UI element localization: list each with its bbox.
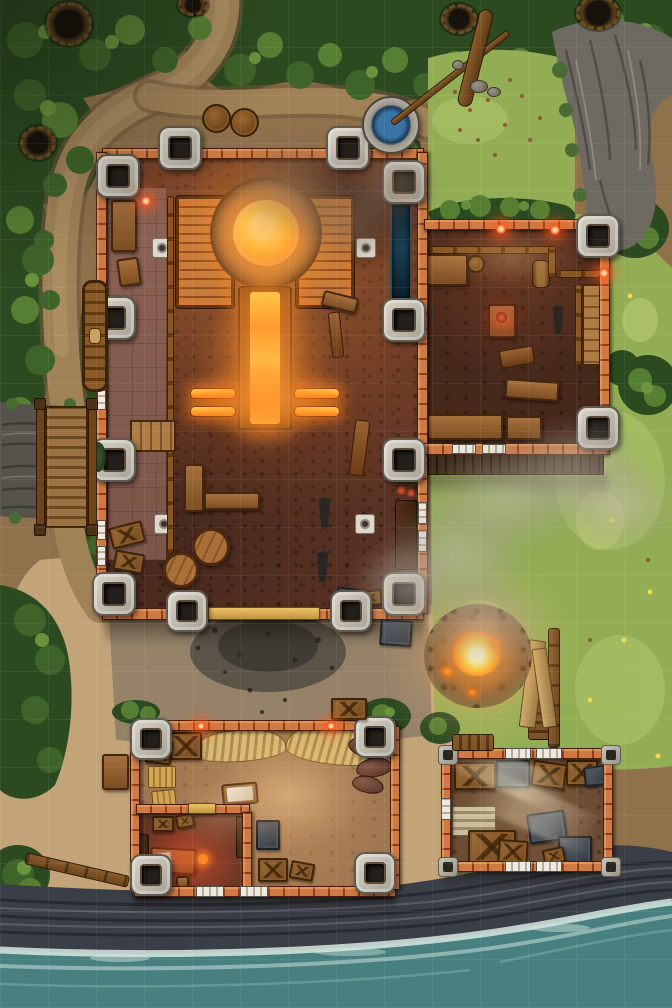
mold-glow bbox=[186, 356, 346, 442]
stone-tower bbox=[166, 590, 208, 632]
walkway-railing bbox=[167, 196, 174, 554]
hot-metal bbox=[496, 312, 507, 323]
office-forge-fire bbox=[198, 854, 208, 864]
worktable bbox=[427, 414, 503, 440]
tree-stump bbox=[46, 2, 92, 46]
bridge-post bbox=[86, 398, 98, 410]
column-base bbox=[355, 514, 375, 534]
barracks-light-pool bbox=[170, 780, 270, 850]
props-layer bbox=[0, 0, 672, 1008]
campfire-smoke bbox=[352, 540, 462, 626]
storehouse-east-wall bbox=[603, 754, 613, 864]
office-door bbox=[188, 803, 216, 814]
bridge-post bbox=[34, 524, 46, 536]
window-slit bbox=[196, 886, 224, 897]
wall-lamp bbox=[327, 722, 335, 730]
stone-tower bbox=[130, 854, 172, 896]
window-slit bbox=[240, 886, 268, 897]
office-wall bbox=[242, 812, 252, 888]
stone-tower bbox=[130, 718, 172, 760]
wall-lamp bbox=[141, 196, 151, 206]
stone-tower bbox=[382, 298, 426, 342]
side-table bbox=[116, 257, 142, 288]
wall-lamp bbox=[599, 268, 609, 278]
stone-post bbox=[601, 745, 621, 765]
well-sweep-pole bbox=[390, 30, 511, 127]
workbench bbox=[204, 492, 260, 510]
bridge-post bbox=[86, 524, 98, 536]
crate bbox=[331, 698, 367, 720]
boulder bbox=[470, 80, 488, 93]
wall-lamp bbox=[496, 224, 506, 234]
ember bbox=[470, 690, 475, 695]
stone-post bbox=[438, 857, 458, 877]
arrow-slit bbox=[97, 520, 106, 540]
stone-tower bbox=[158, 126, 202, 170]
campfire-smoke bbox=[560, 460, 672, 550]
workbench bbox=[184, 464, 204, 512]
wall-lamp bbox=[197, 722, 205, 730]
window-slit bbox=[441, 798, 451, 820]
stone-tower bbox=[382, 438, 426, 482]
crate bbox=[289, 860, 316, 882]
bridge-rail bbox=[88, 402, 97, 532]
hall-south-door bbox=[208, 607, 320, 620]
tree-stump bbox=[20, 126, 56, 160]
building-shadow bbox=[104, 620, 424, 646]
arrow-slit bbox=[97, 390, 106, 410]
crate bbox=[258, 858, 288, 882]
hall-steps bbox=[130, 420, 176, 452]
outdoor-table bbox=[102, 754, 129, 790]
stone-tower bbox=[96, 154, 140, 198]
fence bbox=[24, 852, 130, 888]
tree-stump bbox=[576, 0, 620, 30]
round-table bbox=[163, 552, 199, 588]
window-slit bbox=[505, 861, 531, 872]
stone-post bbox=[601, 857, 621, 877]
building-shadow bbox=[443, 872, 613, 886]
bridge-post bbox=[34, 398, 46, 410]
stone-tower bbox=[92, 572, 136, 616]
water-wheel bbox=[82, 280, 108, 392]
forge-smoke bbox=[342, 150, 442, 220]
bridge-rail bbox=[36, 402, 45, 532]
barrel bbox=[202, 104, 231, 133]
building-shadow bbox=[134, 897, 396, 913]
desk bbox=[111, 200, 137, 252]
stair-railing bbox=[575, 284, 582, 366]
long-table bbox=[504, 378, 559, 402]
window-slit bbox=[536, 861, 562, 872]
barrel bbox=[230, 108, 259, 137]
stone-tower bbox=[354, 852, 396, 894]
wing-lamp-glow bbox=[436, 228, 586, 288]
battle-map bbox=[0, 0, 672, 1008]
wall-lamp bbox=[550, 225, 560, 235]
stone-tower bbox=[576, 214, 620, 258]
arrow-slit bbox=[97, 546, 106, 566]
tree-stump bbox=[441, 4, 477, 34]
tree-stump bbox=[178, 0, 208, 16]
crate bbox=[170, 732, 202, 760]
boulder bbox=[487, 87, 501, 97]
round-table bbox=[192, 528, 230, 566]
bridge-deck bbox=[45, 406, 88, 528]
boulder bbox=[452, 60, 464, 70]
